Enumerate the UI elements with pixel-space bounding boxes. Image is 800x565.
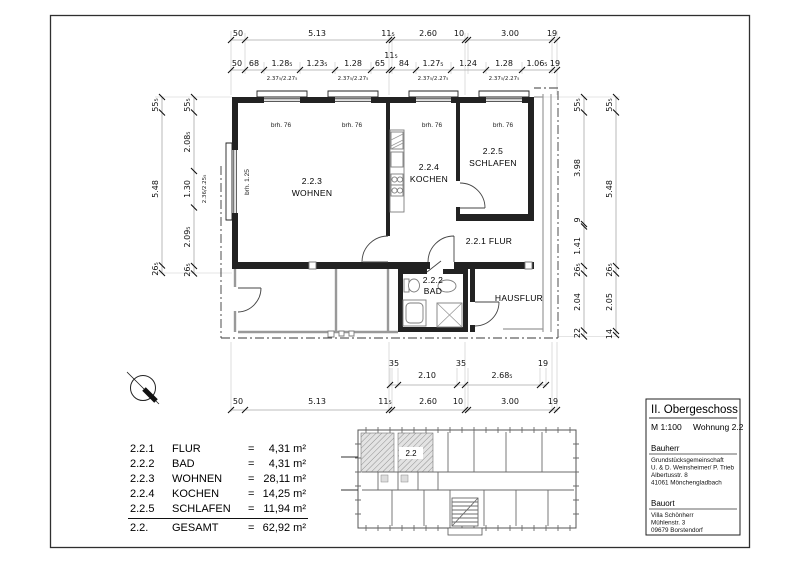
dim-label: 1.28 [344,59,362,68]
dim-label: 55₅ [183,98,192,111]
window-size-label: 2.37₅/2.27₅ [267,76,298,82]
dim-label: 1.23₅ [306,59,327,68]
room-name: WOHNEN [292,188,333,198]
table-room-nr: 2.2.1 [130,443,154,455]
dim-label: 35 [389,359,399,368]
unit-highlight-hatch [361,433,394,472]
table-room-name: FLUR [172,443,201,455]
table-room-name: WOHNEN [172,473,222,485]
stove-burner [392,188,397,193]
dim-label: 19 [550,59,560,68]
window-size-label: 2.37₅/2.27₅ [338,76,369,82]
drawing-title: II. Obergeschoss [651,404,738,416]
dim-label: 14 [605,329,614,339]
dim-label: 19 [538,359,548,368]
dim-label: 1.06₅ [526,59,547,68]
dim-label: 11₅ [384,51,397,60]
dim-label: 22 [573,328,582,338]
dim-label: 3.00 [501,397,519,406]
dim-label: 2.08₅ [183,131,192,152]
dim-label: 2.09₅ [183,226,192,247]
client-line: U. & D. Weinsheimer/ P. Trieb [651,465,735,472]
room-name: BAD [424,286,442,296]
dim-label: 1.28₅ [271,59,292,68]
overview-unit-label: 2.2 [405,449,417,458]
table-equals: = [248,473,254,485]
dim-label: 2.10 [418,371,436,380]
room-name: SCHLAFEN [469,158,517,168]
table-room-area: 28,11 m² [263,473,306,485]
dim-label: 2.68₅ [491,371,512,380]
dim-label: 2.60 [419,29,437,38]
client-line: 41061 Mönchengladbach [651,480,722,487]
overview-staircase [448,498,482,535]
dim-label: 55₅ [151,98,160,111]
dim-label: 1.24 [459,59,477,68]
dim-label: 35 [456,359,466,368]
sill-height-label: brh. 76 [271,122,292,129]
drawing-scale: M 1:100 [651,422,682,432]
dim-label: 2.60 [419,397,437,406]
dim-label: 50 [232,59,242,68]
dim-label: 5.48 [605,180,614,198]
client-line: Grundstücksgemeinschaft [651,457,724,464]
table-room-nr: 2.2.2 [130,458,154,470]
toilet-bowl [409,279,420,292]
dim-label: 1.41 [573,237,582,255]
dim-label: 19 [548,397,558,406]
dim-label: 5.13 [308,29,326,38]
dim-label: 55₅ [573,98,582,111]
table-room-name: SCHLAFEN [172,503,231,515]
table-room-name: KOCHEN [172,488,219,500]
sill-height-label: brh. 76 [342,122,363,129]
dim-label: 84 [399,59,409,68]
dim-label: 2.05 [605,293,614,311]
table-room-area: 4,31 m² [269,443,307,455]
client-heading: Bauherr [651,444,680,453]
room-number: 2.2.2 [423,275,443,285]
dim-label: 68 [249,59,259,68]
dim-label: 26₅ [605,263,614,276]
room-number: 2.2.3 [302,176,322,186]
dim-label: 50 [233,397,243,406]
table-room-nr: 2.2. [130,522,148,534]
dim-label: 1.28 [495,59,513,68]
sill-height-label: brh. 76 [422,122,443,129]
dim-label: 11₅ [381,29,394,38]
drawing-unit: Wohnung 2.2 [693,422,744,432]
bathtub-inner [406,303,423,323]
table-equals: = [248,458,254,470]
table-room-area: 4,31 m² [269,458,307,470]
dim-label: 5.48 [151,180,160,198]
sill-height-label: brh. 1.25 [244,169,251,195]
window-size-label: 2.37₅/2.27₅ [489,76,520,82]
dim-label: 11₅ [378,397,391,406]
dim-label: 26₅ [151,262,160,275]
dim-label: 26₅ [183,263,192,276]
room-name: KOCHEN [410,174,448,184]
dim-label: 3.00 [501,29,519,38]
stove-burner [392,177,397,182]
table-equals: = [248,522,254,534]
table-room-nr: 2.2.3 [130,473,154,485]
title-block: II. Obergeschoss M 1:100 Wohnung 2.2 Bau… [646,399,744,535]
table-room-area: 62,92 m² [263,522,307,534]
dim-label: 10 [453,397,463,406]
room-number: 2.2.5 [483,146,503,156]
site-line: 09679 Borstendorf [651,527,703,534]
room-name: 2.2.1 FLUR [466,236,512,246]
site-heading: Bauort [651,499,675,508]
dim-label: 2.04 [573,293,582,311]
window-size-label: 2.36/2.25₅ [202,175,208,204]
floor-plan-sheet: 50 5.13 11₅ 2.60 10 3.00 19 50 68 1.28₅ … [0,0,800,565]
table-room-nr: 2.2.5 [130,503,154,515]
sill-height-label: brh. 76 [493,122,514,129]
kitchen-fixtures [390,130,404,212]
table-room-area: 11,94 m² [263,503,306,515]
site-line: Mühlenstr. 3 [651,520,686,527]
dim-label: 55₅ [605,98,614,111]
dim-label: 50 [233,29,243,38]
site-line: Villa Schönherr [651,512,694,519]
table-room-area: 14,25 m² [263,488,307,500]
table-equals: = [248,443,254,455]
dim-label: 10 [454,29,464,38]
window-size-label: 2.37₅/2.27₅ [418,76,449,82]
dim-label: 3.98 [573,159,582,177]
room-number: 2.2.4 [419,162,439,172]
dim-label: 65 [375,59,385,68]
overview-plan: 2.2 [341,427,579,535]
stove-burner [397,177,402,182]
dim-label: 1.30 [183,180,192,198]
table-equals: = [248,488,254,500]
client-line: Albertusstr. 8 [651,472,688,479]
dim-label: 5.13 [308,397,326,406]
table-room-name: BAD [172,458,195,470]
stove-burner [397,188,402,193]
table-room-name: GESAMT [172,522,219,534]
table-room-nr: 2.2.4 [130,488,154,500]
dim-label: 26₅ [573,263,582,276]
dim-label: 1.27₅ [422,59,443,68]
dim-label: 19 [547,29,557,38]
room-name: HAUSFLUR [495,293,543,303]
dim-label: 9 [573,217,582,222]
table-equals: = [248,503,254,515]
